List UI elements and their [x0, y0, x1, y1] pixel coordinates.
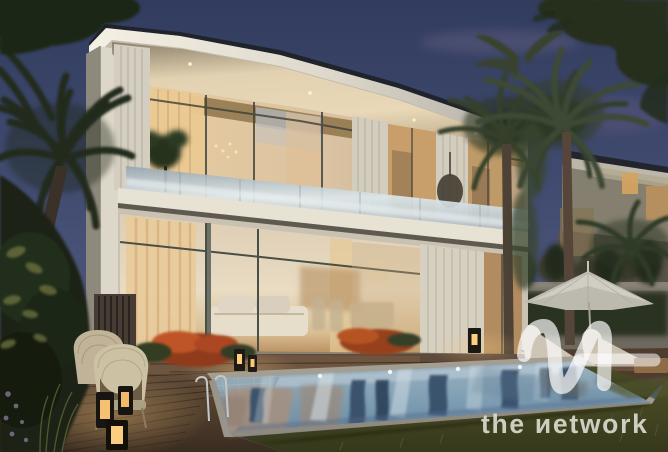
svg-text:the иetwork: the иetwork [481, 409, 649, 439]
